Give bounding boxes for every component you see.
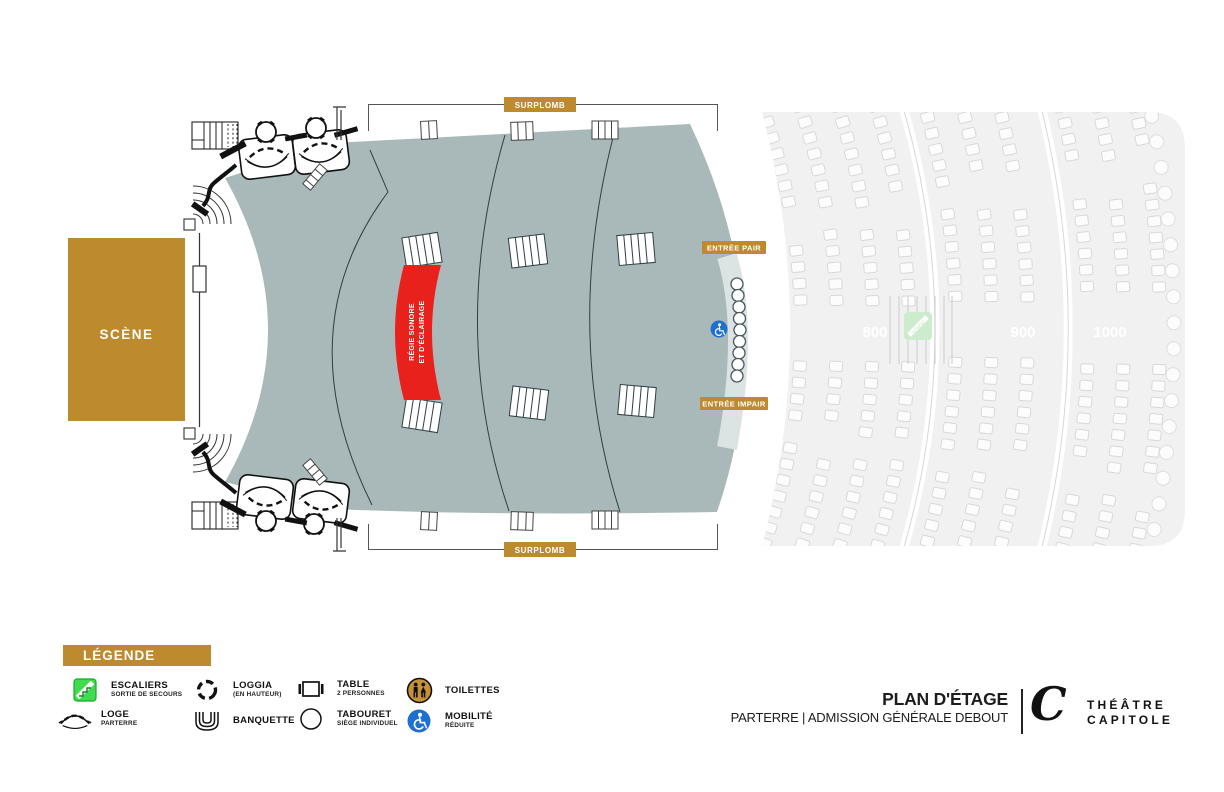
legend-sublabel: PARTERRE [101,720,137,728]
legend-sublabel: (EN HAUTEUR) [233,691,282,699]
legend-sublabel: SORTIE DE SECOURS [111,691,182,699]
wheelchair-spot-icon [711,321,728,338]
brand-line2: CAPITOLE [1087,713,1173,728]
legend-item-loggia: LOGGIA (EN HAUTEUR) [190,677,282,703]
stool-icon [294,706,328,732]
legend-sublabel: 2 PERSONNES [337,690,385,698]
page-subtitle: PARTERRE | ADMISSION GÉNÉRALE DEBOUT [640,709,1008,726]
entree-impair-label: ENTRÉE IMPAIR [702,400,766,409]
surplomb-top-label: SURPLOMB [515,101,566,110]
toilets-icon [402,677,436,704]
theatre-capitole-logo-icon: C [1030,680,1067,728]
loggia-icon [190,677,224,703]
regie-label-line1: RÉGIE SONORE [407,303,416,361]
legend-label: TABOURET [337,710,398,720]
legend-item-table: TABLE 2 PERSONNES [294,678,385,700]
legend-item-escaliers: ESCALIERS SORTIE DE SECOURS [68,677,182,703]
faded-stairs-icon [904,312,932,340]
legend-label: MOBILITÉ [445,712,493,722]
stair-block-top [192,122,238,149]
page-title: PLAN D'ÉTAGE [640,690,1008,709]
surplomb-bottom-label: SURPLOMB [515,546,566,555]
parterre-floor [225,124,744,513]
legend-label: BANQUETTE [233,716,295,726]
legend-label: LOGE [101,710,137,720]
parterre-area [225,124,744,513]
legend-label: TABLE [337,680,385,690]
legend-label: TOILETTES [445,686,500,696]
section-800-label: 800 [862,324,887,341]
floor-plan: 800 900 1000 RÉGIE SONORE ET D'ÉCLAIRAGE [0,0,1224,660]
brand-line1: THÉÂTRE [1087,698,1173,713]
entree-pair: ENTRÉE PAIR [702,241,766,254]
footer-titles: PLAN D'ÉTAGE PARTERRE | ADMISSION GÉNÉRA… [640,690,1008,726]
legend-item-tabouret: TABOURET SIÈGE INDIVIDUEL [294,706,398,732]
section-1000-label: 1000 [1093,324,1126,341]
legend-item-loge: LOGE PARTERRE [58,707,137,731]
footer-divider [1021,689,1023,734]
brand-name: THÉÂTRE CAPITOLE [1087,698,1173,728]
wheelchair-icon [402,708,436,734]
faded-balcony-sections: 800 900 1000 [728,0,1185,660]
legend-item-mobilite: MOBILITÉ RÉDUITE [402,708,493,734]
stage-area: SCÈNE [68,238,185,421]
section-900-label: 900 [1010,324,1035,341]
legend-item-toilettes: TOILETTES [402,677,500,704]
legend-title-bar: LÉGENDE [63,645,211,666]
legend-label: LOGGIA [233,681,282,691]
stage-label: SCÈNE [99,327,153,342]
legend-sublabel: RÉDUITE [445,722,493,730]
entree-impair: ENTRÉE IMPAIR [700,397,768,410]
table-icon [294,678,328,700]
entree-pair-label: ENTRÉE PAIR [707,244,761,253]
loge-icon [58,707,92,731]
regie-label-line2: ET D'ÉCLAIRAGE [417,300,426,363]
legend-sublabel: SIÈGE INDIVIDUEL [337,720,398,728]
banquette-icon [190,708,224,734]
legend-label: ESCALIERS [111,681,182,691]
pit-door [193,266,206,292]
stairs-icon [68,677,102,703]
legend-item-banquette: BANQUETTE [190,708,295,734]
